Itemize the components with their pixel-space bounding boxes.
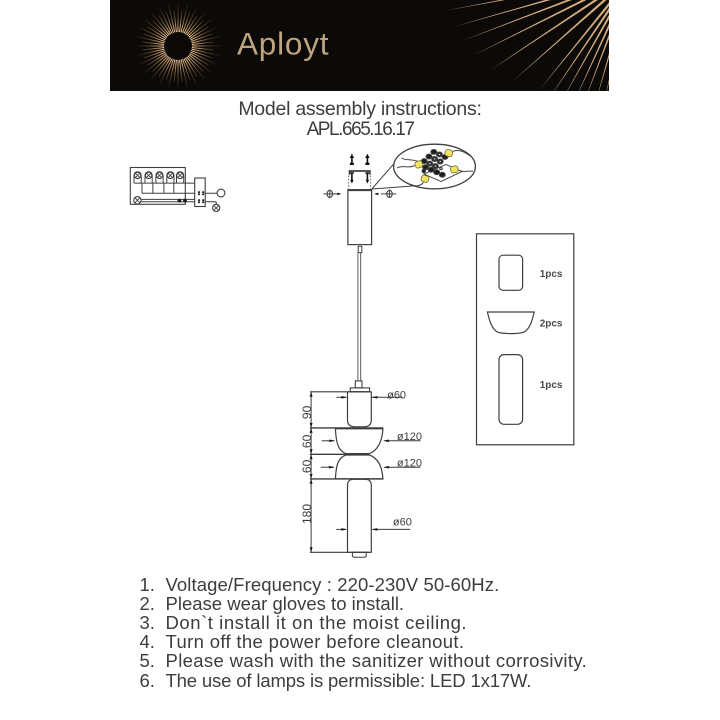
svg-text:60: 60 (300, 459, 314, 473)
svg-text:90: 90 (300, 405, 314, 419)
svg-text:1pcs: 1pcs (540, 269, 563, 280)
svg-text:2pcs: 2pcs (540, 319, 563, 330)
svg-text:ø120: ø120 (397, 431, 422, 443)
svg-text:ø60: ø60 (393, 516, 412, 528)
svg-text:60: 60 (300, 434, 314, 448)
svg-text:ø60: ø60 (387, 390, 406, 402)
svg-text:1pcs: 1pcs (540, 380, 563, 391)
svg-text:180: 180 (300, 504, 314, 524)
svg-text:ø120: ø120 (397, 458, 422, 470)
